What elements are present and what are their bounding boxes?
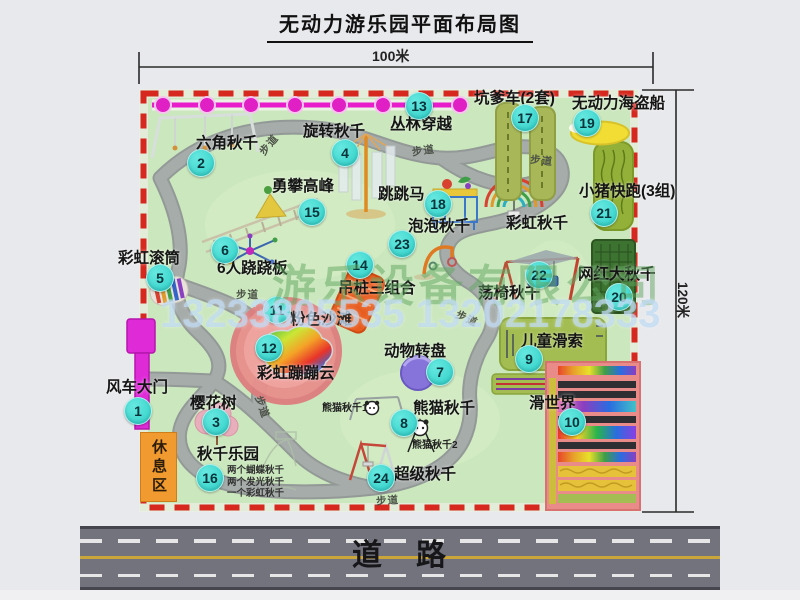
animal-turntable-drawing xyxy=(401,356,435,390)
piggy-run-drawing xyxy=(594,142,633,230)
road: 道 路 xyxy=(80,526,720,590)
lane-dash-line xyxy=(80,574,720,578)
pink-beach-drawing xyxy=(233,300,339,402)
road-shoulder xyxy=(0,590,800,600)
park-layout-plan: 休息区 风车大门1六角秋千2樱花树3旋转秋千4彩虹滚筒56人跷跷板6动物转盘7熊… xyxy=(0,0,800,600)
width-dimension-label: 100米 xyxy=(372,46,409,66)
rest-area-label: 休息区 xyxy=(151,439,166,496)
net-swing-drawing xyxy=(592,240,635,313)
height-dimension-label: 120米 xyxy=(674,282,694,318)
slide-world-drawing xyxy=(546,362,640,510)
rest-area: 休息区 xyxy=(140,432,177,502)
road-label: 道 路 xyxy=(80,541,720,571)
page-title: 无动力游乐园平面布局图 xyxy=(267,8,533,43)
pirate-ship-drawing xyxy=(569,122,629,145)
